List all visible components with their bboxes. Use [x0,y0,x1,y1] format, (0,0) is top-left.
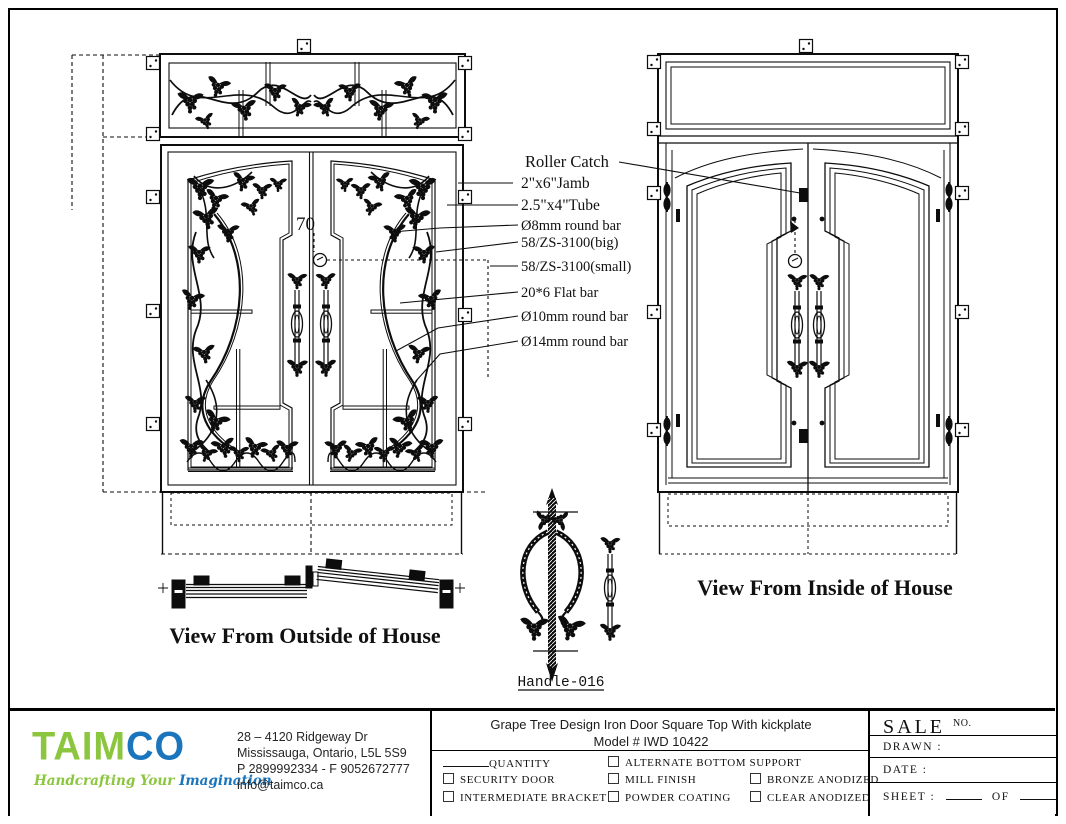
checkbox-clear-anodized[interactable] [750,791,761,802]
handle-detail: Handle-016 [517,488,621,691]
sheet-total-blank[interactable] [1020,789,1056,800]
option-label: BRONZE ANODIZED [767,774,879,786]
product-model: Model # IWD 10422 [432,734,870,749]
sheet-row: SHEET : OF [870,783,1057,814]
sale-no-row: SALE NO. [870,711,1057,736]
callout-jamb: 2"x6"Jamb [521,175,590,192]
sale-section: SALE NO. DRAWN : DATE : SHEET : OF [868,711,1057,816]
address-line1: 28 – 4120 Ridgeway Dr [237,729,410,745]
outside-view-label: View From Outside of House [169,623,441,648]
sheet-label: SHEET : [883,791,935,803]
option-label: INTERMEDIATE BRACKET [460,792,607,804]
callout-14mm-bar: Ø14mm round bar [521,334,628,350]
company-address: 28 – 4120 Ridgeway Dr Mississauga, Ontar… [237,729,410,793]
callout-zs-big: 58/ZS-3100(big) [521,235,619,251]
address-line3: P 2899992334 - F 9052672777 [237,761,410,777]
drawn-row: DRAWN : [870,736,1057,758]
company-section: TAIMCO Handcrafting Your Imagination 28 … [10,711,430,816]
option-label: POWDER COATING [625,792,731,804]
company-logo: TAIMCO [32,726,185,768]
product-title: Grape Tree Design Iron Door Square Top W… [432,717,870,732]
tagline-green: Handcrafting Your [34,773,179,789]
callout-flat-bar: 20*6 Flat bar [521,285,598,301]
callout-tube: 2.5"x4"Tube [521,197,600,214]
option-intermediate-bracket: INTERMEDIATE BRACKET [443,791,607,804]
checkbox-intermediate-bracket[interactable] [443,791,454,802]
address-line4: info@taimco.ca [237,777,410,793]
title-block: TAIMCO Handcrafting Your Imagination 28 … [10,708,1055,816]
option-mill-finish: MILL FINISH [608,773,696,786]
checkbox-security-door[interactable] [443,773,454,784]
checkbox-mill-finish[interactable] [608,773,619,784]
checkbox-bronze-anodized[interactable] [750,773,761,784]
outside-door-view: 70 [72,40,488,555]
drawn-label: DRAWN : [883,741,942,753]
quantity-blank[interactable] [443,756,489,767]
technical-drawing: 70 [0,0,1066,707]
inside-door-view [648,40,969,555]
callout-zs-small: 58/ZS-3100(small) [521,259,632,275]
option-powder-coating: POWDER COATING [608,791,731,804]
logo-text-green: TAIM [32,725,126,769]
checkbox-powder-coating[interactable] [608,791,619,802]
date-label: DATE : [883,764,927,776]
checkbox-alternate-bottom-support[interactable] [608,756,619,767]
quantity-field: QUANTITY [443,756,551,770]
product-title-box: Grape Tree Design Iron Door Square Top W… [432,711,870,751]
product-section: Grape Tree Design Iron Door Square Top W… [430,711,870,816]
plan-view [158,558,465,608]
sheet-number-blank[interactable] [946,789,982,800]
option-label: CLEAR ANODIZED [767,792,870,804]
date-row: DATE : [870,758,1057,783]
option-alternate-bottom-support: ALTERNATE BOTTOM SUPPORT [608,756,801,769]
handle-detail-label: Handle-016 [517,675,604,691]
drawing-sheet: 70 [0,0,1066,824]
of-label: OF [992,791,1010,803]
option-label: MILL FINISH [625,774,696,786]
address-line2: Mississauga, Ontario, L5L 5S9 [237,745,410,761]
sale-no-label: NO. [953,718,971,729]
quantity-label: QUANTITY [489,758,551,770]
inside-view-label: View From Inside of House [697,575,953,600]
callout-10mm-bar: Ø10mm round bar [521,309,628,325]
callout-labels: Roller Catch 2"x6"Jamb 2.5"x4"Tube Ø8mm … [521,152,632,350]
option-bronze-anodized: BRONZE ANODIZED [750,773,879,786]
callout-roller-catch: Roller Catch [525,152,610,171]
dimension-70-label: 70 [296,214,315,235]
option-clear-anodized: CLEAR ANODIZED [750,791,870,804]
option-label: ALTERNATE BOTTOM SUPPORT [625,757,801,769]
option-security-door: SECURITY DOOR [443,773,555,786]
sale-label: SALE [883,716,945,738]
option-label: SECURITY DOOR [460,774,555,786]
callout-8mm-bar: Ø8mm round bar [521,218,621,234]
logo-text-blue: CO [126,725,185,769]
